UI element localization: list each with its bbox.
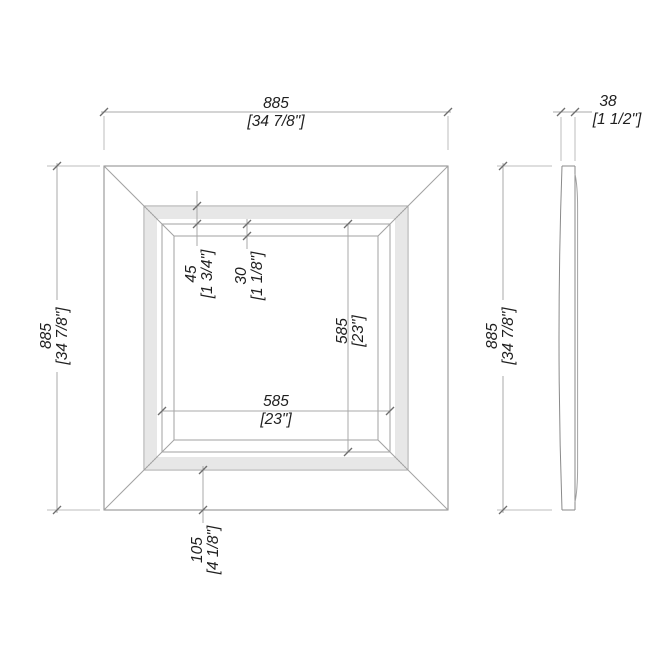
- dim-front-width-mm: 885: [263, 95, 289, 112]
- dim-side-thickness-mm: 38: [599, 93, 617, 110]
- dim-face-border: 105 [4 1/8"]: [189, 466, 222, 575]
- technical-drawing: 885 [34 7/8"] 885 [34 7/8"] 45 [1 3/4"] …: [0, 0, 657, 660]
- mitre-top-right: [378, 166, 448, 236]
- dim-opening-height-mm: 585: [334, 318, 351, 344]
- dim-face-border-mm: 105: [189, 537, 206, 563]
- mitre-bottom-right: [378, 440, 448, 510]
- dim-inner-bevel-in: [1 1/8"]: [249, 251, 266, 301]
- mitre-top-left: [104, 166, 174, 236]
- dim-side-height: 885 [34 7/8"]: [484, 162, 552, 514]
- front-view: [104, 166, 448, 510]
- dim-opening-height: 585 [23"]: [334, 220, 367, 456]
- dim-front-height: 885 [34 7/8"]: [38, 162, 100, 514]
- dim-side-thickness: 38 [1 1/2"]: [553, 93, 642, 161]
- mitre-bottom-left: [104, 440, 174, 510]
- dim-side-thickness-in: [1 1/2"]: [592, 111, 642, 128]
- dim-side-height-mm: 885: [484, 323, 501, 349]
- dim-moulding-band-mm: 45: [183, 265, 200, 283]
- profile-front-face: [559, 166, 562, 510]
- dim-front-height-mm: 885: [38, 323, 55, 349]
- dim-inner-bevel-mm: 30: [233, 267, 250, 285]
- side-view: [559, 166, 578, 510]
- dim-moulding-band-in: [1 3/4"]: [199, 249, 216, 299]
- dim-opening-height-in: [23"]: [350, 315, 367, 348]
- dim-opening-width-in: [23"]: [259, 411, 292, 428]
- dim-moulding-band: 45 [1 3/4"]: [183, 191, 216, 299]
- dim-face-border-in: [4 1/8"]: [205, 525, 222, 575]
- dim-side-height-in: [34 7/8"]: [500, 307, 517, 366]
- dim-front-height-in: [34 7/8"]: [54, 307, 71, 366]
- dim-front-width-in: [34 7/8"]: [246, 113, 305, 130]
- dim-opening-width: 585 [23"]: [158, 393, 394, 428]
- dim-opening-width-mm: 585: [263, 393, 289, 410]
- dim-front-width: 885 [34 7/8"]: [100, 95, 452, 150]
- moulding-band-outer: [144, 206, 408, 470]
- drawing-canvas: 885 [34 7/8"] 885 [34 7/8"] 45 [1 3/4"] …: [0, 0, 657, 660]
- dim-inner-bevel: 30 [1 1/8"]: [233, 219, 266, 301]
